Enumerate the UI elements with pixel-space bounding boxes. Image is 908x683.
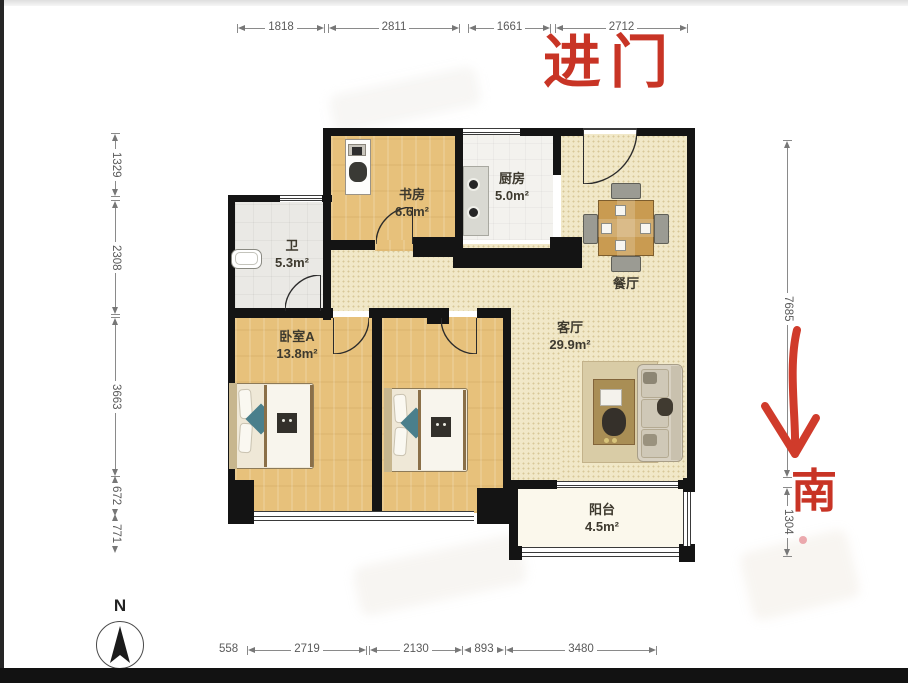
room-balcony: 阳台 4.5m² <box>571 502 633 536</box>
room-dining: 餐厅 <box>598 276 654 293</box>
wall <box>326 128 457 136</box>
stove-burner <box>467 178 480 191</box>
dining-chair <box>654 214 669 244</box>
room-study-label: 书房 <box>399 187 425 202</box>
bathtub-inner <box>235 252 258 265</box>
tray-dot <box>436 423 439 426</box>
wall <box>228 195 280 202</box>
dimension-left-4: 672 <box>108 479 122 513</box>
balcony-slider-window <box>557 481 678 488</box>
decor <box>602 408 626 436</box>
dimension-top-2: 2811 <box>328 21 460 35</box>
room-kitchen: 厨房 5.0m² <box>482 171 542 205</box>
wall <box>228 480 254 524</box>
south-label: 南 <box>791 468 837 514</box>
room-bedroomA: 卧室A 13.8m² <box>266 329 328 363</box>
room-living-area: 29.9m² <box>549 337 590 352</box>
north-arrow-icon <box>97 622 143 668</box>
dimension-bottom-558: 558 <box>219 644 238 656</box>
plate <box>615 240 626 251</box>
wall <box>503 308 511 488</box>
dimension-left-1: 1329 <box>108 133 122 197</box>
wall <box>520 128 583 136</box>
dining-chair <box>611 183 641 199</box>
south-arrow-icon <box>752 322 830 472</box>
dimension-value: 3480 <box>565 644 597 656</box>
room-bedroomA-area: 13.8m² <box>276 346 317 361</box>
bedroomB-door-arc <box>441 318 477 354</box>
wall <box>509 486 518 550</box>
wall <box>455 128 463 248</box>
entry-door-arc <box>583 130 637 184</box>
room-bath: 卫 5.3m² <box>262 238 322 272</box>
room-study-area: 6.6m² <box>395 204 429 219</box>
compass-north-label: N <box>104 596 136 616</box>
watermark-dot <box>799 536 807 544</box>
watermark-smudge <box>327 65 482 135</box>
dimension-value: 1329 <box>109 149 121 181</box>
dimension-value: 2130 <box>400 644 432 656</box>
entrance-annotation: 进门 <box>543 34 677 92</box>
dimension-bottom-4: 3480 <box>505 643 657 657</box>
wall <box>550 237 582 268</box>
dimension-value: 2308 <box>109 242 121 274</box>
room-living: 客厅 29.9m² <box>538 320 602 354</box>
dimension-value: 1818 <box>265 22 297 34</box>
wall <box>323 128 331 320</box>
dimension-value: 1661 <box>494 22 526 34</box>
wall <box>331 240 375 250</box>
dimension-top-3: 1661 <box>468 21 551 35</box>
plate <box>601 223 612 234</box>
pillow <box>238 423 253 454</box>
room-bath-area: 5.3m² <box>275 255 309 270</box>
dimension-value: 3663 <box>109 381 121 413</box>
bedroomA-door-arc <box>333 318 369 354</box>
room-bath-label: 卫 <box>285 238 298 253</box>
room-balcony-label: 阳台 <box>589 502 615 517</box>
dimension-value: 2811 <box>379 22 410 34</box>
dimension-value: 7685 <box>781 293 793 325</box>
room-kitchen-area: 5.0m² <box>495 188 529 203</box>
wall <box>687 128 695 488</box>
dimension-bottom-2: 2130 <box>369 643 463 657</box>
tv <box>600 389 622 406</box>
plate <box>615 205 626 216</box>
room-study: 书房 6.6m² <box>382 187 442 221</box>
dimension-left-2: 2308 <box>108 200 122 315</box>
window <box>254 511 474 521</box>
dimension-top-1: 1818 <box>237 21 325 35</box>
window <box>683 490 691 546</box>
window <box>280 195 322 201</box>
room-kitchen-label: 厨房 <box>499 171 525 186</box>
room-dining-label: 餐厅 <box>613 276 639 291</box>
dimension-bottom-1: 2719 <box>247 643 367 657</box>
bottom-bar <box>0 668 908 683</box>
bed-tray <box>277 413 297 433</box>
bed-headboard <box>384 388 392 472</box>
bed-headboard <box>229 383 237 469</box>
wall <box>553 128 561 175</box>
bath-door-arc <box>285 275 321 311</box>
dimension-bottom-3: 893 <box>465 643 503 657</box>
tray-dot <box>443 423 446 426</box>
window <box>521 547 681 557</box>
sofa-pillow <box>657 398 673 416</box>
dimension-value: 771 <box>109 521 121 546</box>
wall <box>509 546 522 560</box>
bed-tray <box>431 417 451 437</box>
floorplan-image: 1818 2811 1661 2712 1329 2308 3663 672 <box>0 0 908 683</box>
dimension-left-3: 3663 <box>108 317 122 477</box>
room-balcony-area: 4.5m² <box>585 519 619 534</box>
desk-chair <box>349 162 367 182</box>
plate <box>640 223 651 234</box>
pillow <box>393 427 408 457</box>
wall <box>372 317 382 517</box>
sofa-back <box>671 366 681 460</box>
stove-burner <box>467 206 480 219</box>
room-living-label: 客厅 <box>557 320 583 335</box>
sofa-pillow <box>643 372 657 384</box>
wall <box>453 248 555 268</box>
compass <box>96 621 144 669</box>
dining-chair <box>611 256 641 272</box>
sofa-pillow <box>643 434 657 446</box>
window <box>457 128 520 135</box>
room-bedroomA-label: 卧室A <box>279 329 314 344</box>
wall <box>679 544 695 562</box>
wall <box>477 488 509 524</box>
watermark-smudge <box>352 533 529 617</box>
top-edge-strip <box>0 0 908 6</box>
dimension-left-5: 771 <box>108 515 122 552</box>
laptop <box>352 147 362 155</box>
dimension-value: 672 <box>109 483 121 508</box>
dimension-value: 893 <box>471 644 496 656</box>
tray-dot <box>282 419 285 422</box>
left-edge-strip <box>0 0 4 683</box>
decor-dot <box>612 438 617 443</box>
wall <box>683 478 695 492</box>
dining-chair <box>583 214 598 244</box>
dimension-value: 2719 <box>291 644 323 656</box>
tray-dot <box>289 419 292 422</box>
decor-dot <box>604 438 609 443</box>
